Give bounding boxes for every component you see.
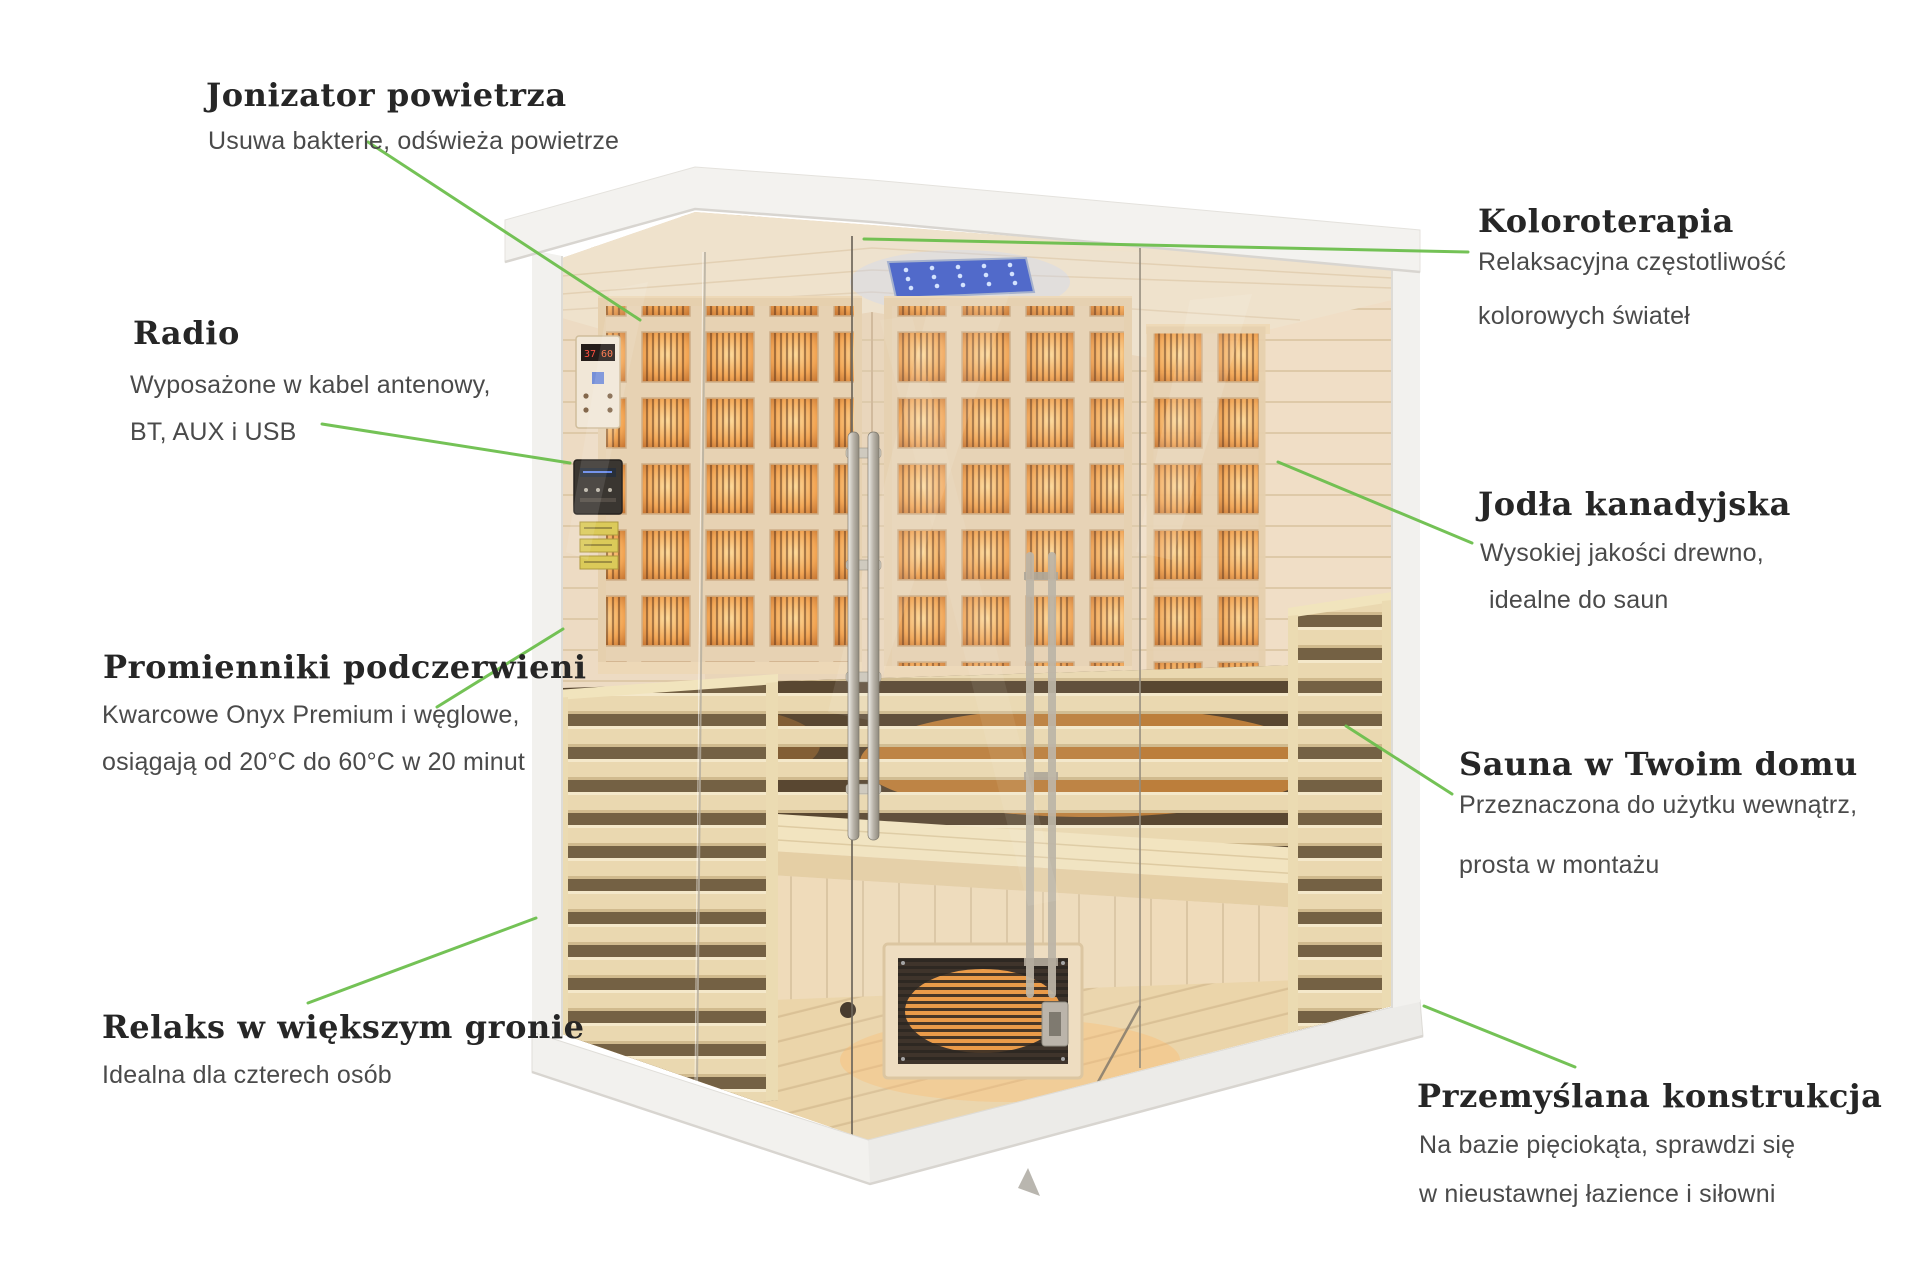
annotation-text-sauna-domu-1: Przeznaczona do użytku wewnątrz, bbox=[1459, 791, 1857, 820]
annotation-text-promienniki-2: osiągają od 20°C do 60°C w 20 minut bbox=[102, 748, 525, 777]
annotation-heading-radio: Radio bbox=[133, 314, 240, 352]
annotation-heading-jodla: Jodła kanadyjska bbox=[1478, 485, 1791, 523]
annotation-text-relaks-1: Idealna dla czterech osób bbox=[102, 1061, 392, 1090]
sauna-right-pillar bbox=[1392, 262, 1420, 1008]
annotation-text-promienniki-1: Kwarcowe Onyx Premium i węglowe, bbox=[102, 701, 520, 730]
annotation-text-jonizator-1: Usuwa bakterie, odświeża powietrze bbox=[208, 127, 619, 156]
annotation-line-konstrukcja bbox=[1424, 1006, 1575, 1067]
annotation-heading-sauna-domu: Sauna w Twoim domu bbox=[1459, 745, 1858, 783]
infographic-canvas: 37 60 bbox=[0, 0, 1920, 1280]
annotation-text-jodla-1: Wysokiej jakości drewno, bbox=[1480, 539, 1764, 568]
annotation-heading-koloroterapia: Koloroterapia bbox=[1478, 202, 1734, 240]
glass-door bbox=[852, 236, 1140, 1194]
annotation-text-konstrukcja-2: w nieustawnej łazience i siłowni bbox=[1419, 1180, 1776, 1209]
annotation-heading-konstrukcja: Przemyślana konstrukcja bbox=[1417, 1077, 1882, 1115]
annotation-text-koloroterapia-1: Relaksacyjna częstotliwość bbox=[1478, 248, 1786, 277]
annotation-text-sauna-domu-2: prosta w montażu bbox=[1459, 851, 1660, 880]
annotation-text-radio-2: BT, AUX i USB bbox=[130, 418, 297, 447]
annotation-text-koloroterapia-2: kolorowych świateł bbox=[1478, 302, 1690, 331]
annotation-text-radio-1: Wyposażone w kabel antenowy, bbox=[130, 371, 491, 400]
annotation-heading-relaks: Relaks w większym gronie bbox=[102, 1008, 585, 1046]
annotation-heading-promienniki: Promienniki podczerwieni bbox=[103, 648, 587, 686]
annotation-heading-jonizator: Jonizator powietrza bbox=[206, 76, 567, 114]
door-glass-tip bbox=[1018, 1168, 1040, 1196]
annotation-line-relaks bbox=[308, 918, 536, 1003]
annotation-text-jodla-2: idealne do saun bbox=[1489, 586, 1669, 615]
annotation-text-konstrukcja-1: Na bazie pięciokąta, sprawdzi się bbox=[1419, 1131, 1795, 1160]
